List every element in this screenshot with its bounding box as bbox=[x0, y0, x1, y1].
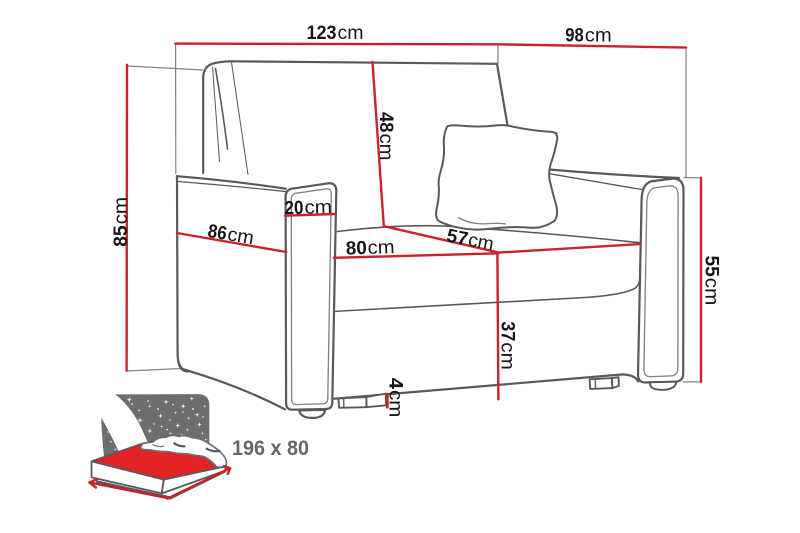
svg-text:80: 80 bbox=[345, 238, 367, 260]
svg-text:cm: cm bbox=[585, 26, 612, 47]
svg-text:98: 98 bbox=[565, 26, 584, 47]
svg-text:cm: cm bbox=[338, 23, 364, 44]
svg-text:48: 48 bbox=[375, 112, 396, 133]
svg-text:57: 57 bbox=[445, 226, 470, 251]
svg-text:55: 55 bbox=[701, 256, 722, 278]
svg-text:4: 4 bbox=[384, 378, 405, 390]
svg-text:123: 123 bbox=[307, 23, 337, 44]
svg-text:20: 20 bbox=[284, 198, 304, 219]
svg-text:cm: cm bbox=[701, 278, 722, 306]
svg-text:196 x 80: 196 x 80 bbox=[232, 437, 309, 460]
svg-text:cm: cm bbox=[226, 224, 255, 249]
svg-text:cm: cm bbox=[496, 342, 517, 370]
svg-text:cm: cm bbox=[367, 237, 395, 259]
svg-text:cm: cm bbox=[384, 390, 405, 417]
svg-text:cm: cm bbox=[375, 134, 396, 161]
svg-text:85: 85 bbox=[111, 225, 132, 247]
svg-text:cm: cm bbox=[111, 197, 132, 225]
svg-text:cm: cm bbox=[304, 197, 332, 219]
svg-text:37: 37 bbox=[496, 321, 517, 341]
svg-text:86: 86 bbox=[206, 221, 228, 245]
